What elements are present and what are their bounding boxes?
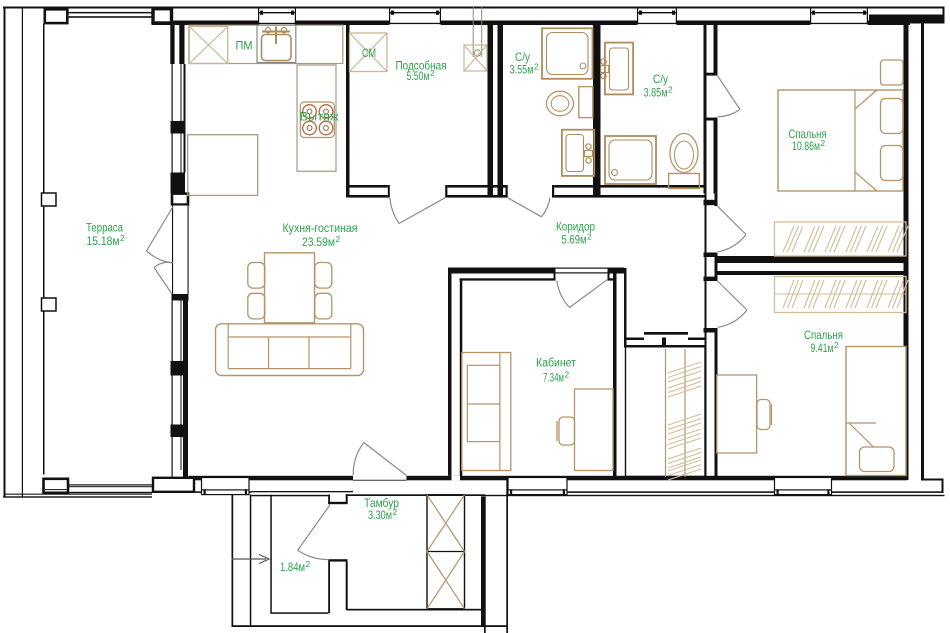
svg-text:2: 2: [306, 559, 311, 569]
svg-text:2: 2: [120, 233, 125, 243]
svg-text:2: 2: [834, 340, 839, 350]
svg-text:5.50м: 5.50м: [407, 69, 430, 83]
svg-text:10.86м: 10.86м: [792, 139, 820, 153]
svg-text:2: 2: [668, 85, 673, 95]
svg-text:2: 2: [821, 138, 826, 148]
svg-text:15.18м: 15.18м: [87, 234, 120, 248]
svg-text:1.84м: 1.84м: [280, 560, 305, 574]
svg-text:2: 2: [430, 68, 435, 78]
svg-text:2: 2: [336, 234, 341, 244]
svg-text:С/у: С/у: [653, 72, 668, 86]
svg-text:23.59м: 23.59м: [302, 235, 335, 249]
svg-text:2: 2: [393, 507, 398, 517]
svg-text:Кухня-гостиная: Кухня-гостиная: [283, 221, 358, 235]
svg-text:7.34м: 7.34м: [543, 371, 564, 385]
svg-text:ПМ: ПМ: [236, 39, 253, 53]
svg-text:2: 2: [587, 232, 592, 242]
svg-text:9.41м: 9.41м: [811, 341, 834, 355]
svg-text:2: 2: [534, 62, 539, 72]
svg-text:3.85м: 3.85м: [644, 86, 668, 100]
svg-text:2: 2: [565, 370, 570, 380]
svg-text:5.69м: 5.69м: [562, 233, 587, 247]
svg-text:СМ: СМ: [362, 46, 376, 60]
svg-text:3.30м: 3.30м: [368, 508, 392, 522]
svg-text:Вытяж: Вытяж: [300, 110, 339, 124]
svg-text:Терраса: Терраса: [86, 221, 123, 235]
svg-text:3.55м: 3.55м: [510, 63, 534, 77]
svg-text:Кабинет: Кабинет: [536, 356, 576, 370]
